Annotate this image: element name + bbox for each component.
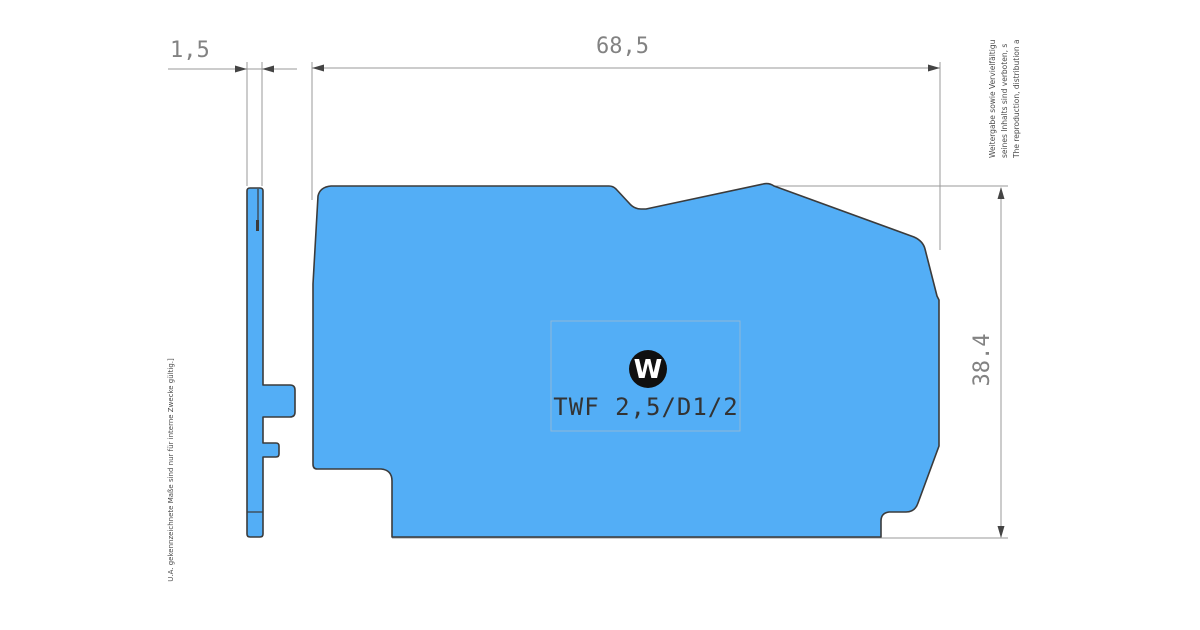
logo-letter: W [634,355,663,385]
part-number-label: TWF 2,5/D1/2 [550,393,742,421]
technical-drawing-endplate: W 1,5 68,5 38.4 TWF 2,5/D1/2 Weitergabe … [0,0,1200,630]
internal-dimensions-note: U.A. gekennzeichnete Maße sind nur für i… [165,335,177,605]
arrow-38-4-bottom [998,526,1005,538]
arrow-68-5-left [312,65,324,72]
copyright-note: Weitergabe sowie Vervielfältigu seines I… [987,12,1023,158]
side-profile-view [247,188,295,537]
copyright-note-line2: seines Inhalts sind verboten, s [999,12,1011,158]
dimension-body-height: 38.4 [967,329,997,391]
dimension-body-length: 68,5 [596,34,649,59]
arrow-38-4-top [998,187,1005,199]
front-profile-view: W [313,184,939,537]
endplate-outline [313,184,939,537]
arrow-68-5-right [928,65,940,72]
arrow-1-5-right [262,66,274,73]
weidmueller-logo-icon: W [629,350,667,388]
copyright-note-line1: Weitergabe sowie Vervielfältigu [987,12,999,158]
copyright-note-line3: The reproduction, distribution a [1011,12,1023,158]
arrow-1-5-left [235,66,247,73]
dimension-side-thickness: 1,5 [170,38,210,63]
side-profile-outline [247,188,295,537]
